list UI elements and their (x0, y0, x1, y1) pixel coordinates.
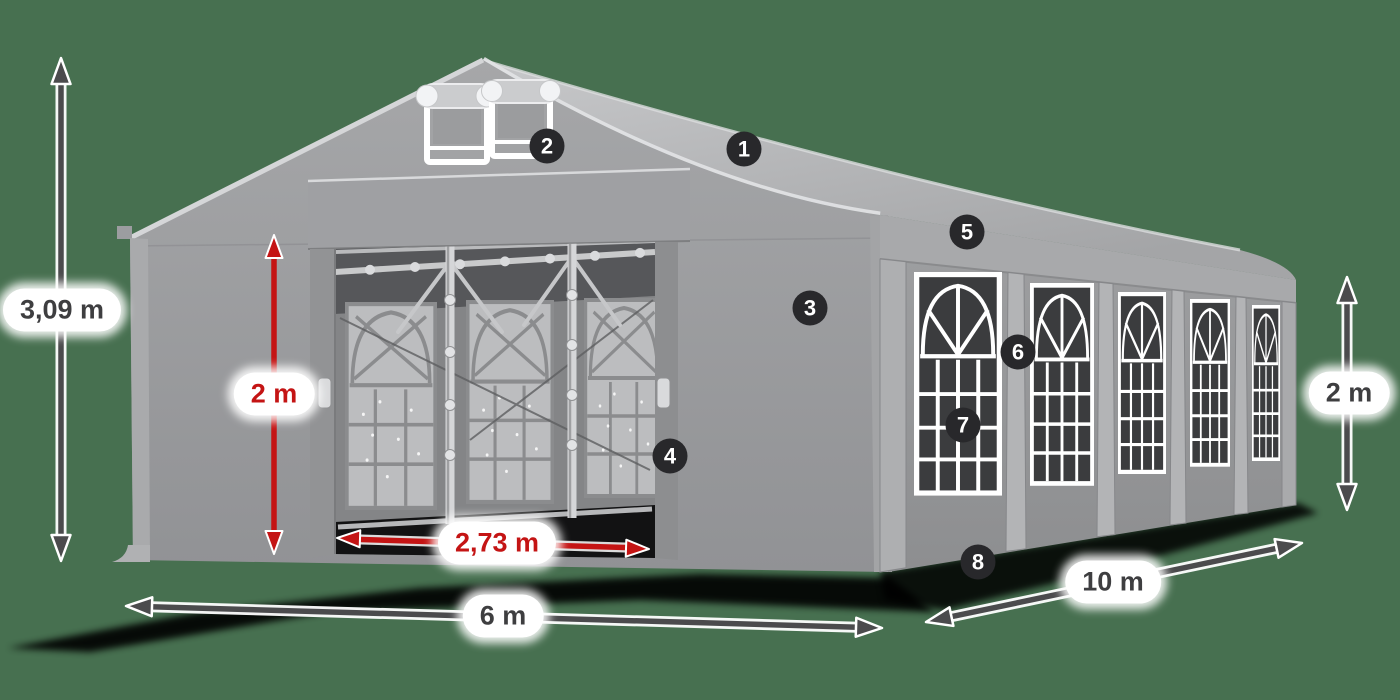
callout-badge-2[interactable]: 2 (530, 129, 565, 164)
callout-badge-1[interactable]: 1 (727, 132, 762, 167)
dimension-label-entrance-width: 2,73 m (438, 522, 556, 565)
badge-number: 3 (804, 296, 816, 321)
dimension-label-entrance-height: 2 m (234, 373, 315, 416)
entrance-opening (330, 236, 662, 566)
interior-window (347, 304, 435, 508)
badge-number: 7 (957, 413, 969, 438)
door-strap-right (657, 378, 670, 408)
badge-number: 8 (972, 550, 984, 575)
badge-number: 1 (738, 137, 750, 162)
side-window-2 (1032, 285, 1092, 483)
eave-tab (117, 226, 132, 239)
skirt-flare (112, 545, 150, 562)
dimension-label-side-length: 10 m (1065, 561, 1161, 604)
side-window-4 (1191, 301, 1229, 465)
scaffold-pole (445, 246, 456, 524)
callout-badge-8[interactable]: 8 (961, 545, 996, 580)
callout-badge-6[interactable]: 6 (1001, 335, 1036, 370)
dimension-label-side-wall-height: 2 m (1309, 372, 1390, 415)
side-window-1 (917, 275, 1000, 493)
side-window-5 (1253, 307, 1279, 459)
callout-badge-4[interactable]: 4 (653, 439, 688, 474)
tent-illustration: 1 2 3 4 5 6 7 8 (0, 0, 1400, 700)
badge-number: 6 (1012, 340, 1024, 365)
badge-number: 4 (664, 444, 677, 469)
badge-number: 5 (961, 220, 973, 245)
dimension-label-total-height: 3,09 m (3, 289, 121, 332)
callout-badge-3[interactable]: 3 (793, 291, 828, 326)
dimension-label-front-width: 6 m (463, 595, 544, 638)
entrance-header-panel (308, 169, 690, 249)
tent-diagram: 1 2 3 4 5 6 7 8 3,09 m 2 m 2,73 m 6 m 10… (0, 0, 1400, 700)
interior-window (586, 300, 663, 496)
callout-badge-5[interactable]: 5 (950, 215, 985, 250)
scaffold-pole (567, 242, 578, 518)
door-strap-left (318, 378, 331, 408)
callout-badge-7[interactable]: 7 (946, 408, 981, 443)
front-corner-pole-left (130, 238, 150, 560)
badge-number: 2 (541, 134, 553, 159)
side-window-3 (1119, 294, 1164, 472)
